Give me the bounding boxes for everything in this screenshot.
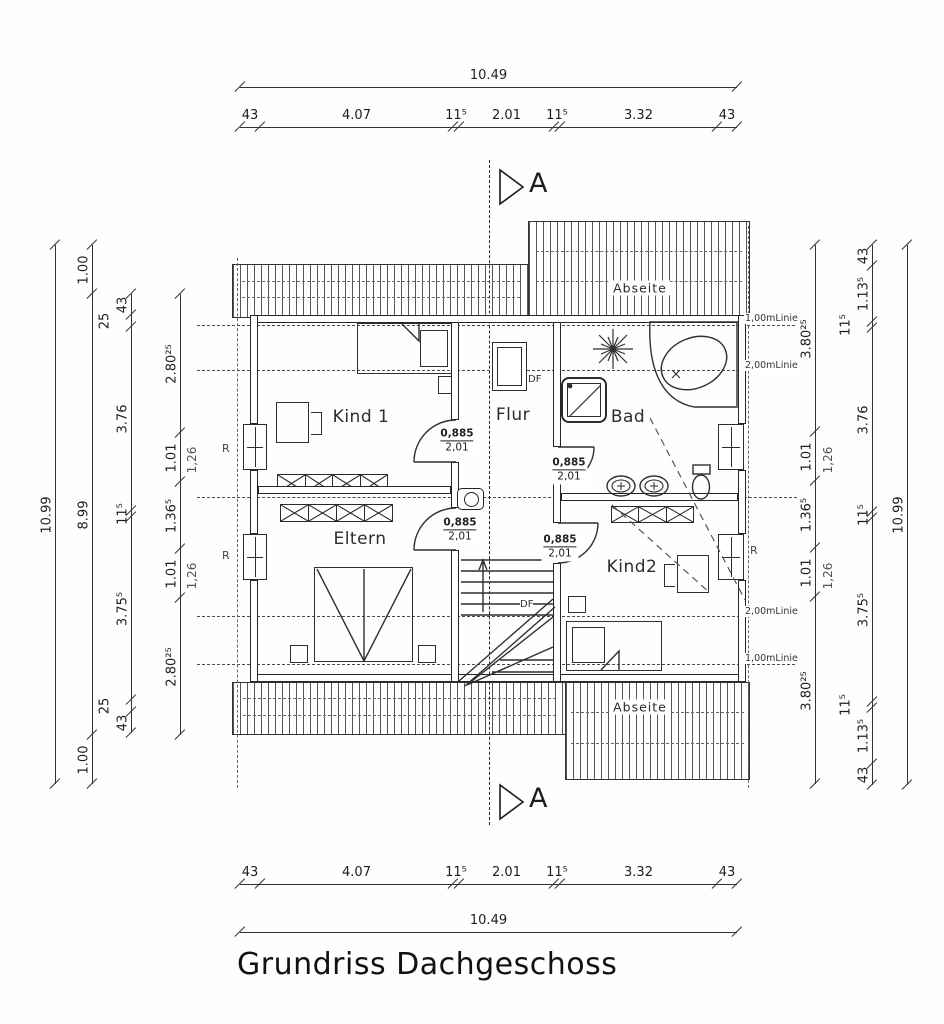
wall-flur-bad-upper [553,322,561,447]
height-note-2m-bottom: 2,00mLinie [744,606,799,617]
stair-break-line [459,599,555,686]
eave-line-left [237,258,238,788]
skylight-flur [492,342,527,391]
room-label-kind2: Kind2 [607,557,658,577]
dim-label: 25 [98,313,113,330]
height-line-1m-bottom [197,664,795,665]
section-triangle-top [500,170,523,204]
wall-exterior-top [250,315,746,323]
bathtub-basin [653,326,735,399]
drawing-title: Grundriss Dachgeschoss [237,947,617,982]
eave-line-right [748,226,749,788]
room-label-flur: Flur [496,405,530,425]
roof-band-top-left [232,264,530,318]
dim-label: 1.01 [165,559,180,588]
dim-label: 1.01 [800,442,815,471]
door-height: 2,01 [552,471,585,484]
room-label-bad: Bad [611,407,645,427]
abseite-label-top: Abseite [610,281,670,296]
basin-1-inner [612,480,630,492]
dim-label: 3.75⁵ [116,591,131,625]
dim-label: 2.80²⁵ [165,344,180,383]
bathtub-drain [672,370,680,378]
dim-label: 1.13⁵ [857,719,872,753]
roof-band-bottom-left [232,682,567,735]
dim-label: 1.00 [77,745,92,774]
plant-star [593,329,633,369]
door-height: 2,01 [440,442,473,455]
window-eltern-left [243,534,267,580]
door-label-bad: 0,885 2,01 [550,455,587,484]
dim-label: 3.80²⁵ [800,671,815,710]
dim-label: 1.01 [165,443,180,472]
dim-label: 1.36⁵ [165,498,180,532]
wall-exterior-bottom [250,674,746,682]
stairs [459,560,555,686]
dim-label: 11⁵ [445,865,467,880]
abseite-label-bottom: Abseite [610,700,670,715]
room-label-kind1: Kind 1 [333,407,390,427]
wall-kind1-flur-upper [451,322,459,420]
door-width: 0,885 [543,533,576,547]
chair-kind1 [311,412,322,435]
bed-eltern [314,567,413,662]
dim-label: 1.13⁵ [857,277,872,311]
wall-exterior-left-3 [250,580,258,682]
window-bad-right [718,424,744,470]
bathtub [650,322,737,407]
chimney [457,488,484,510]
dim-label: 1.01 [800,558,815,587]
dim-label: 3.76 [116,405,131,434]
dim-label: 1.00 [77,255,92,284]
door-width: 0,885 [552,456,585,470]
desk-kind1 [276,402,309,443]
dim-label: 3.32 [624,865,653,880]
dim-label: 11⁵ [839,314,854,336]
room-label-eltern: Eltern [333,529,386,549]
dim-label: 10.99 [40,496,55,533]
dim-label: 10.49 [470,68,507,83]
height-note-1m-top: 1,00mLinie [744,313,799,324]
wall-exterior-right-2 [738,470,746,534]
dim-label: 11⁵ [546,865,568,880]
dim-label: 3.75⁵ [857,593,872,627]
basin-2-cross [650,482,658,490]
dim-label: 43 [719,865,736,880]
dim-label: 11⁵ [445,108,467,123]
dim-label: 8.99 [77,500,92,529]
dim-label: 3.76 [857,406,872,435]
dim-companion-right-lower: 1,26 [821,563,835,590]
chair-kind2 [664,564,675,587]
dim-companion-left-lower: 1,26 [185,563,199,590]
dim-label: 1.36⁵ [800,497,815,531]
wall-flur-bad-stub [553,483,561,523]
dim-label: 43 [116,714,131,731]
shower-bad [561,377,607,423]
downpipe-label-left-upper: R [222,442,230,455]
height-note-2m-top: 2,00mLinie [744,360,799,371]
stair-arrow [479,560,487,612]
skylight-label-flur: DF [528,374,541,385]
dim-label: 11⁵ [116,503,131,525]
floor-plan-drawing: Abseite Abseite [0,0,944,1024]
dim-companion-left-upper: 1,26 [185,447,199,474]
height-line-1m-top [197,325,795,326]
section-label-top: A [529,168,547,199]
dim-label: 10.99 [892,496,907,533]
dim-label: 2.01 [492,108,521,123]
dim-label: 43 [242,865,259,880]
wall-stair-left [451,550,459,682]
nightstand-eltern-right [418,645,436,663]
wall-bad-kind2 [561,493,738,501]
door-width: 0,885 [443,516,476,530]
nightstand-eltern-left [290,645,308,663]
dim-label: 10.49 [470,913,507,928]
dim-label: 2.80²⁵ [165,647,180,686]
door-width: 0,885 [440,427,473,441]
window-kind1-left [243,424,267,470]
side-table-kind2 [568,596,586,613]
skylight-label-stairs: DF [520,599,533,610]
door-height: 2,01 [543,548,576,561]
downpipe-label-right: R [750,544,758,557]
dim-label: 3.32 [624,108,653,123]
basin-2-inner [645,480,663,492]
section-label-bottom: A [529,783,547,814]
dim-label: 4.07 [342,865,371,880]
roof-band-top-right [528,221,750,318]
door-label-eltern: 0,885 2,01 [441,515,478,544]
dim-label: 2.01 [492,865,521,880]
desk-kind2 [677,555,709,593]
wardrobe-eltern [280,504,393,522]
wardrobe-kind2 [611,506,694,523]
dim-label: 43 [719,108,736,123]
dim-label: 25 [98,698,113,715]
wall-exterior-right-3 [738,580,746,682]
dim-label: 11⁵ [857,504,872,526]
door-label-kind1: 0,885 2,01 [438,426,475,455]
section-cut-line [489,160,490,825]
dim-label: 43 [242,108,259,123]
basin-1-cross [617,482,625,490]
dim-label: 11⁵ [839,694,854,716]
height-note-1m-bottom: 1,00mLinie [744,653,799,664]
window-kind2-right [718,534,744,580]
wall-exterior-left-2 [250,470,258,534]
dim-label: 3.80²⁵ [800,319,815,358]
wall-exterior-left-1 [250,315,258,424]
door-label-kind2: 0,885 2,01 [541,532,578,561]
dim-label: 4.07 [342,108,371,123]
dim-label: 43 [857,247,872,264]
dim-companion-right-upper: 1,26 [821,447,835,474]
dim-label: 43 [116,296,131,313]
wall-kind1-eltern [258,486,451,494]
dim-label: 11⁵ [546,108,568,123]
roof-band-bottom-right [565,682,750,780]
door-height: 2,01 [443,531,476,544]
pillow-kind2 [572,627,605,663]
pillow-kind1 [420,330,448,367]
section-triangle-bottom [500,785,523,819]
height-line-2m-bottom [197,616,795,617]
toilet-tank [693,465,710,474]
dim-label: 43 [857,766,872,783]
downpipe-label-left-lower: R [222,549,230,562]
wall-stair-right [553,563,561,682]
